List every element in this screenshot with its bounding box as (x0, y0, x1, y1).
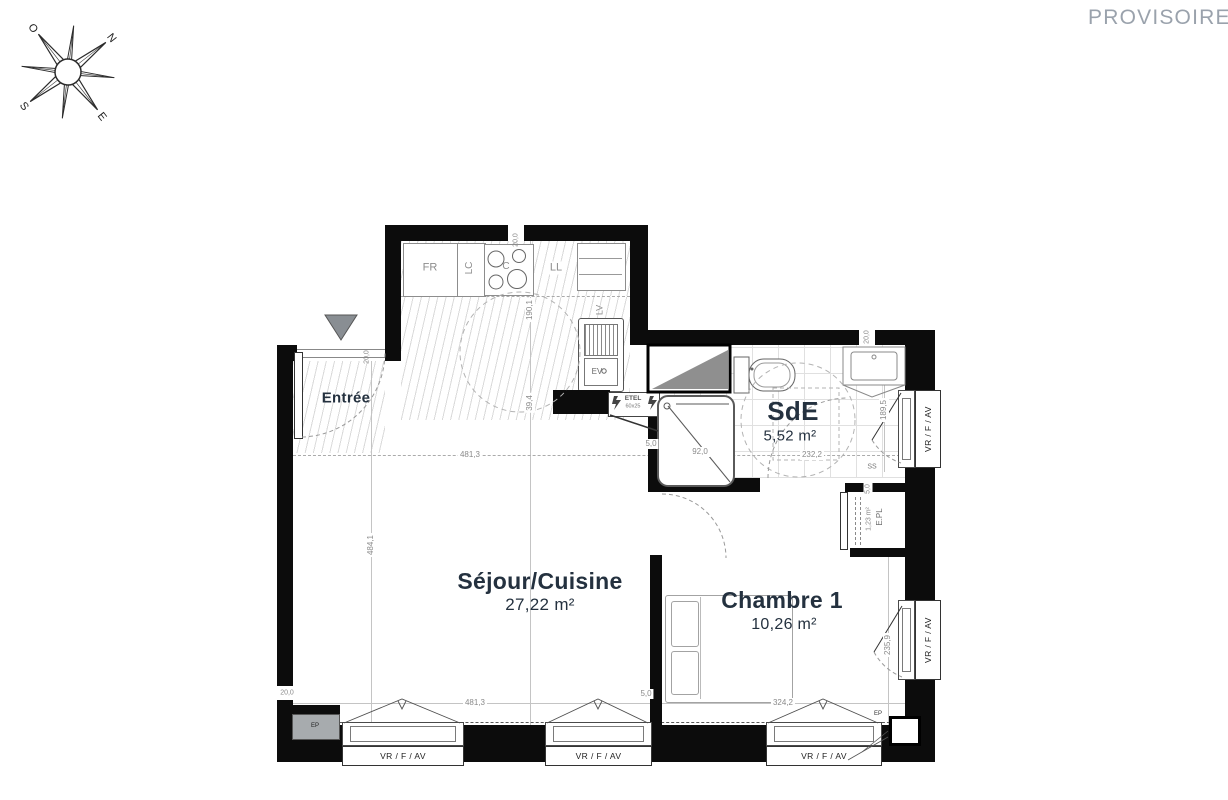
bed-blanket-line (700, 597, 701, 699)
compass-west-label: O (25, 21, 40, 35)
dim-wall-bottom-left: 20,0 (278, 689, 296, 698)
sink-drainer (584, 324, 618, 356)
window-chambre-right-frame (902, 608, 911, 672)
dim-sejour-width-bottom: 481,3 (463, 698, 487, 708)
wall-epl-top (845, 483, 905, 492)
provisoire-watermark: PROVISOIRE (1088, 6, 1224, 30)
placard-area: 1,23 m² (866, 507, 873, 531)
ep-label-right: EP (874, 711, 882, 717)
sde-label: SdE (767, 397, 818, 427)
window-chambre-bottom-frame (774, 726, 874, 742)
ep-label-left: EP (311, 723, 319, 729)
floor-plan: PROVISOIRE (0, 0, 1228, 800)
window-chambre-right-label: VR / F / AV (915, 600, 941, 680)
closet-rod-line-2 (860, 497, 861, 545)
dim-chambre-height: 235,9 (883, 633, 893, 657)
chambre-area: 10,26 m² (751, 616, 817, 634)
shelf-line-1 (579, 258, 622, 259)
entry-threshold-line-2 (297, 357, 385, 358)
dim-wall-kitchen-top: 20,0 (512, 231, 521, 249)
entry-door-leaf (294, 352, 303, 439)
wall-etel-spur (553, 390, 610, 414)
compass-rose: N S E O (0, 0, 153, 157)
window-sejour-1-frame (350, 726, 456, 742)
dishwasher-label: LV (596, 305, 605, 315)
wall-sde-top (630, 330, 935, 345)
dim-gap-chambre: 5,0 (638, 689, 653, 699)
closet-rod-line-1 (855, 497, 856, 545)
dim-sejour-width-mid: 481,3 (458, 450, 482, 460)
sejour-area: 27,22 m² (505, 595, 575, 615)
shelf-box (577, 243, 626, 291)
cooktop-label: C (502, 262, 509, 272)
dim-sde-height: 189,5 (879, 398, 889, 422)
tall-unit-label: LC (465, 262, 475, 275)
elec-panel-label: ETEL (625, 396, 642, 403)
window-sejour-2-label: VR / F / AV (545, 746, 652, 766)
wall-kitchen-right (630, 225, 648, 345)
elec-panel-size: 60x25 (626, 404, 641, 410)
window-chambre-bottom (766, 722, 882, 746)
wall-epl-bottom (850, 548, 908, 557)
chambre-label: Chambre 1 (721, 587, 843, 613)
dim-shower: 92,0 (690, 447, 710, 457)
wall-partition-chambre (650, 555, 662, 725)
dim-kitchen-lower: 39,4 (525, 393, 535, 413)
entree-label: Entrée (322, 389, 371, 406)
window-chambre-bottom-label: VR / F / AV (766, 746, 882, 766)
window-sde (898, 390, 915, 468)
window-sejour-2 (545, 722, 652, 746)
window-sejour-1-label: VR / F / AV (342, 746, 464, 766)
window-chambre-right (898, 600, 915, 680)
window-sejour-2-frame (553, 726, 644, 742)
placard-label: E.PL (876, 508, 884, 525)
compass-north-label: N (104, 31, 118, 45)
wall-sde-bottom (648, 478, 760, 492)
dim-chambre-width: 324,2 (771, 698, 795, 708)
sde-area: 5,52 m² (764, 427, 817, 444)
window-sejour-1 (342, 722, 464, 746)
window-sde-label: VR / F / AV (915, 390, 941, 468)
compass-south-label: S (17, 100, 31, 113)
dim-kitchen-depth: 190,1 (525, 298, 535, 322)
dim-gap-sde-door: 5,0 (643, 439, 658, 449)
compass-east-label: E (95, 110, 109, 123)
bed-pillow-1 (671, 601, 699, 647)
window-sde-frame (902, 398, 911, 460)
closet-front-panel (840, 492, 848, 550)
sink-label: EV (592, 368, 603, 376)
entry-threshold-line-1 (297, 349, 385, 350)
shelf-line-2 (579, 274, 622, 275)
fridge-label: FR (423, 263, 438, 274)
dimline-bottom-width (293, 703, 905, 704)
post (889, 716, 921, 746)
dim-sde-width: 232,2 (800, 450, 824, 460)
dim-sejour-height: 484,1 (366, 533, 376, 557)
washer-label: LL (549, 262, 563, 275)
dim-wall-entree: 20,0 (363, 348, 372, 366)
sejour-label: Séjour/Cuisine (457, 568, 622, 594)
wall-kitchen-left (385, 225, 401, 361)
dim-gap-epl: 5,0 (864, 482, 873, 496)
dim-wall-sde-top: 20,0 (863, 328, 872, 346)
towel-rail-label: SS (867, 464, 876, 471)
entrance-arrow-icon (325, 315, 357, 340)
bed-pillow-2 (671, 651, 699, 695)
